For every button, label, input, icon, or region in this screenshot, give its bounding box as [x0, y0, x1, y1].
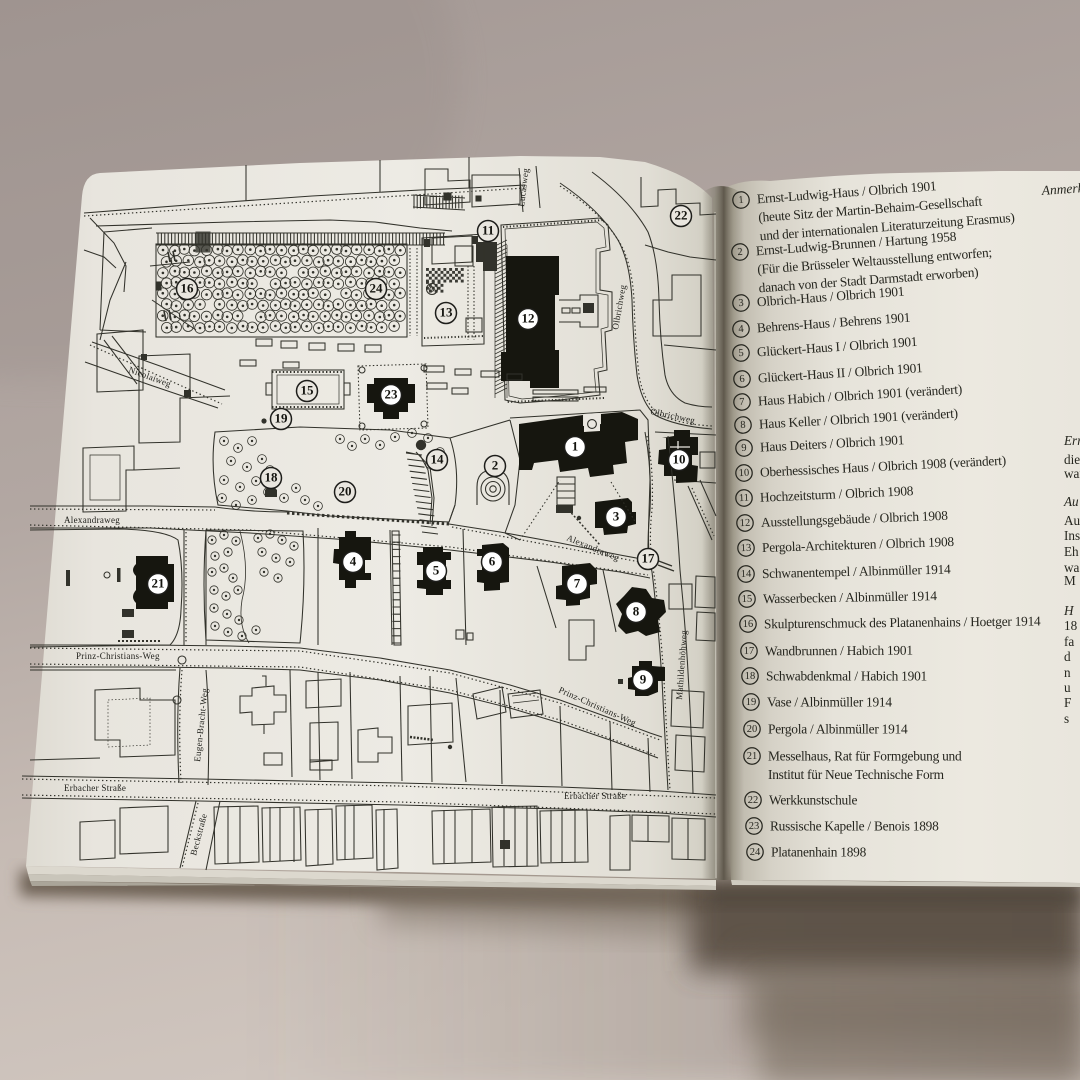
svg-text:Wasserbecken / Albinmüller 191: Wasserbecken / Albinmüller 1914	[763, 588, 938, 606]
svg-text:3: 3	[738, 298, 744, 309]
svg-text:Alexandraweg: Alexandraweg	[64, 515, 120, 525]
svg-text:22: 22	[748, 795, 759, 806]
svg-text:17: 17	[744, 646, 755, 657]
svg-text:2: 2	[737, 247, 743, 258]
svg-text:5: 5	[433, 562, 440, 577]
svg-text:8: 8	[633, 603, 640, 618]
svg-text:1: 1	[572, 438, 579, 453]
svg-text:9: 9	[640, 671, 647, 686]
svg-text:Institut für Neue Technische F: Institut für Neue Technische Form	[768, 767, 945, 782]
svg-text:13: 13	[741, 543, 752, 554]
svg-text:24: 24	[750, 847, 761, 858]
svg-text:18: 18	[1064, 618, 1078, 633]
svg-text:Ins: Ins	[1064, 528, 1080, 543]
svg-text:F: F	[1064, 695, 1071, 710]
svg-text:Erbacher Straße: Erbacher Straße	[564, 791, 626, 801]
svg-text:23: 23	[749, 821, 760, 832]
svg-text:19: 19	[746, 697, 757, 708]
svg-text:Eh: Eh	[1064, 544, 1079, 559]
svg-text:17: 17	[642, 550, 656, 565]
svg-text:3: 3	[613, 508, 620, 523]
svg-text:22: 22	[675, 207, 688, 222]
svg-text:23: 23	[385, 386, 399, 401]
svg-text:fa: fa	[1064, 634, 1074, 649]
svg-text:19: 19	[275, 410, 289, 425]
svg-text:H: H	[1063, 603, 1075, 618]
svg-text:7: 7	[739, 397, 745, 408]
svg-text:10: 10	[739, 468, 750, 479]
svg-text:2: 2	[492, 457, 499, 472]
svg-text:12: 12	[740, 518, 751, 529]
svg-text:M: M	[1064, 573, 1076, 588]
svg-text:20: 20	[339, 483, 352, 498]
svg-text:18: 18	[265, 469, 279, 484]
svg-text:10: 10	[673, 451, 686, 466]
svg-text:6: 6	[489, 553, 496, 568]
svg-text:Au: Au	[1064, 513, 1080, 528]
svg-text:Russische Kapelle / Benois 189: Russische Kapelle / Benois 1898	[770, 819, 939, 834]
svg-text:Vase / Albinmüller 1914: Vase / Albinmüller 1914	[767, 695, 892, 710]
svg-text:n: n	[1064, 665, 1071, 680]
svg-text:1: 1	[738, 195, 744, 206]
svg-text:s: s	[1064, 711, 1069, 726]
svg-text:9: 9	[741, 443, 747, 454]
svg-text:21: 21	[747, 751, 758, 762]
svg-text:Pergola / Albinmüller 1914: Pergola / Albinmüller 1914	[768, 722, 908, 737]
svg-text:18: 18	[745, 671, 756, 682]
svg-text:Prinz-Christians-Weg: Prinz-Christians-Weg	[76, 651, 160, 661]
svg-text:11: 11	[739, 493, 750, 504]
svg-text:24: 24	[370, 280, 384, 295]
svg-text:7: 7	[574, 575, 581, 590]
svg-text:Werkkunstschule: Werkkunstschule	[769, 793, 857, 808]
svg-text:14: 14	[431, 451, 445, 466]
svg-text:4: 4	[350, 553, 357, 568]
svg-text:Wandbrunnen / Habich 1901: Wandbrunnen / Habich 1901	[765, 643, 913, 659]
svg-text:Messelhaus, Rat für Formgebung: Messelhaus, Rat für Formgebung und	[768, 749, 962, 764]
svg-text:16: 16	[743, 619, 754, 630]
svg-text:Schwabdenkmal / Habich 1901: Schwabdenkmal / Habich 1901	[766, 669, 927, 684]
svg-text:16: 16	[181, 280, 195, 295]
svg-text:8: 8	[740, 420, 746, 431]
svg-text:Platanenhain 1898: Platanenhain 1898	[771, 845, 867, 860]
svg-text:15: 15	[301, 382, 315, 397]
svg-text:6: 6	[739, 374, 745, 385]
svg-text:12: 12	[522, 310, 535, 325]
svg-text:5: 5	[738, 348, 744, 359]
svg-text:d: d	[1064, 649, 1071, 664]
svg-text:15: 15	[742, 594, 753, 605]
svg-text:21: 21	[152, 575, 165, 590]
svg-text:die: die	[1064, 452, 1080, 467]
svg-text:war: war	[1064, 466, 1080, 481]
svg-text:14: 14	[741, 569, 753, 580]
svg-text:11: 11	[482, 222, 494, 237]
svg-text:Skulpturenschmuck des Platanen: Skulpturenschmuck des Platanenhains / Ho…	[764, 613, 1041, 631]
svg-text:Anmerk: Anmerk	[1040, 180, 1080, 198]
svg-text:Au: Au	[1063, 494, 1079, 509]
svg-text:13: 13	[440, 304, 454, 319]
svg-text:u: u	[1064, 680, 1071, 695]
svg-text:20: 20	[747, 724, 758, 735]
svg-text:Erbacher Straße: Erbacher Straße	[64, 783, 126, 793]
svg-text:Ern: Ern	[1063, 433, 1080, 448]
